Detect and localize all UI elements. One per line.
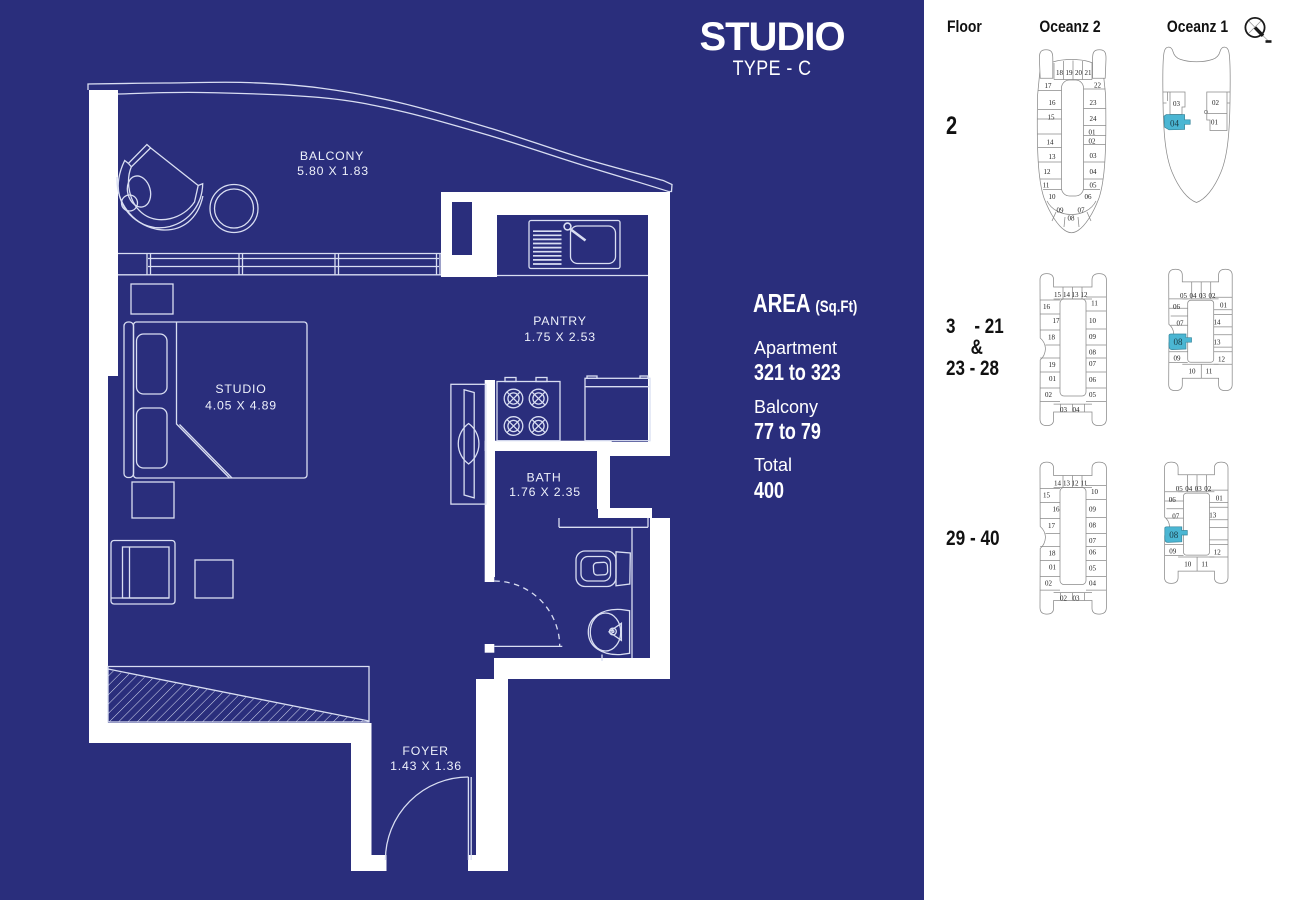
svg-text:01: 01	[1216, 494, 1224, 502]
svg-text:13: 13	[1049, 153, 1057, 161]
svg-text:14: 14	[1063, 291, 1071, 299]
svg-text:10: 10	[1049, 193, 1057, 201]
svg-text:14: 14	[1047, 139, 1055, 147]
svg-text:03: 03	[1199, 292, 1207, 300]
svg-text:09: 09	[1089, 333, 1097, 341]
svg-text:13: 13	[1209, 511, 1217, 519]
svg-text:02: 02	[1212, 99, 1220, 107]
svg-text:FOYER: FOYER	[402, 744, 448, 758]
svg-text:5.80 X 1.83: 5.80 X 1.83	[297, 164, 369, 178]
svg-text:05: 05	[1180, 292, 1188, 300]
svg-text:13: 13	[1214, 339, 1222, 347]
svg-text:04: 04	[1090, 168, 1098, 176]
svg-text:BALCONY: BALCONY	[300, 149, 364, 163]
svg-text:17: 17	[1053, 317, 1061, 325]
svg-text:1.75 X 2.53: 1.75 X 2.53	[524, 330, 596, 344]
svg-text:15: 15	[1048, 114, 1056, 122]
svg-text:13: 13	[1063, 480, 1071, 488]
svg-text:18: 18	[1048, 334, 1056, 342]
svg-text:15: 15	[1043, 492, 1051, 500]
svg-text:12: 12	[1081, 291, 1089, 299]
svg-text:02: 02	[1060, 595, 1068, 603]
svg-text:06: 06	[1089, 549, 1097, 557]
svg-text:10: 10	[1089, 317, 1097, 325]
svg-text:04: 04	[1089, 580, 1097, 588]
svg-text:09: 09	[1169, 547, 1177, 555]
svg-text:03: 03	[1090, 152, 1098, 160]
svg-text:12: 12	[1072, 480, 1080, 488]
svg-text:07: 07	[1089, 360, 1097, 368]
svg-text:03: 03	[1195, 485, 1203, 493]
svg-text:19: 19	[1049, 361, 1057, 369]
svg-text:04: 04	[1073, 406, 1081, 414]
svg-text:12: 12	[1044, 168, 1052, 176]
svg-text:02: 02	[1204, 485, 1212, 493]
svg-text:22: 22	[1094, 82, 1102, 90]
svg-text:04: 04	[1170, 119, 1180, 129]
svg-text:PANTRY: PANTRY	[533, 314, 587, 328]
svg-text:05: 05	[1089, 565, 1097, 573]
svg-text:11: 11	[1201, 560, 1208, 568]
svg-text:06: 06	[1173, 303, 1181, 311]
svg-text:16: 16	[1043, 303, 1051, 311]
svg-text:01: 01	[1049, 375, 1057, 383]
svg-text:21: 21	[1085, 69, 1093, 77]
svg-text:04: 04	[1190, 292, 1198, 300]
svg-text:05: 05	[1090, 182, 1098, 190]
svg-text:01: 01	[1089, 129, 1097, 137]
svg-text:06: 06	[1089, 376, 1097, 384]
svg-text:24: 24	[1090, 115, 1098, 123]
svg-text:06: 06	[1085, 193, 1093, 201]
svg-text:07: 07	[1089, 537, 1097, 545]
svg-text:03: 03	[1073, 595, 1081, 603]
svg-text:09: 09	[1057, 207, 1065, 215]
svg-text:16: 16	[1049, 99, 1057, 107]
svg-text:01: 01	[1211, 119, 1219, 127]
svg-text:07: 07	[1172, 512, 1180, 520]
svg-text:07: 07	[1078, 207, 1086, 215]
svg-text:20: 20	[1075, 69, 1083, 77]
svg-text:17: 17	[1045, 82, 1053, 90]
svg-text:02: 02	[1209, 292, 1217, 300]
svg-text:02: 02	[1089, 138, 1097, 146]
svg-text:07: 07	[1177, 320, 1185, 328]
svg-text:11: 11	[1043, 182, 1050, 190]
svg-text:18: 18	[1049, 550, 1057, 558]
svg-text:05: 05	[1176, 485, 1184, 493]
svg-text:09: 09	[1089, 506, 1097, 514]
svg-text:03: 03	[1173, 100, 1181, 108]
svg-text:BATH: BATH	[526, 471, 561, 485]
svg-text:1.76 X 2.35: 1.76 X 2.35	[509, 485, 581, 499]
svg-text:01: 01	[1220, 302, 1228, 310]
svg-text:08: 08	[1089, 522, 1097, 530]
svg-text:02: 02	[1045, 391, 1053, 399]
svg-text:06: 06	[1169, 496, 1177, 504]
svg-text:10: 10	[1184, 560, 1192, 568]
svg-text:17: 17	[1048, 522, 1056, 530]
svg-text:19: 19	[1066, 69, 1074, 77]
svg-text:23: 23	[1090, 99, 1098, 107]
svg-text:11: 11	[1091, 300, 1098, 308]
svg-text:05: 05	[1089, 391, 1097, 399]
svg-text:15: 15	[1054, 291, 1062, 299]
svg-text:02: 02	[1045, 580, 1053, 588]
svg-text:01: 01	[1049, 564, 1057, 572]
svg-text:11: 11	[1081, 480, 1088, 488]
svg-text:08: 08	[1089, 349, 1097, 357]
svg-text:08: 08	[1169, 530, 1179, 540]
svg-text:4.05 X 4.89: 4.05 X 4.89	[205, 399, 277, 413]
svg-text:08: 08	[1174, 337, 1184, 347]
svg-text:03: 03	[1060, 406, 1068, 414]
svg-text:18: 18	[1056, 69, 1064, 77]
svg-text:1.43 X 1.36: 1.43 X 1.36	[390, 759, 462, 773]
svg-text:08: 08	[1068, 215, 1076, 223]
svg-text:10: 10	[1091, 488, 1099, 496]
svg-text:11: 11	[1206, 368, 1213, 376]
svg-text:14: 14	[1214, 319, 1222, 327]
svg-text:14: 14	[1054, 480, 1062, 488]
svg-text:16: 16	[1053, 506, 1061, 514]
svg-text:13: 13	[1072, 291, 1080, 299]
svg-text:10: 10	[1189, 368, 1197, 376]
svg-text:12: 12	[1214, 548, 1222, 556]
svg-text:04: 04	[1185, 485, 1193, 493]
svg-text:09: 09	[1174, 355, 1182, 363]
svg-text:STUDIO: STUDIO	[215, 382, 266, 396]
svg-text:12: 12	[1218, 356, 1226, 364]
